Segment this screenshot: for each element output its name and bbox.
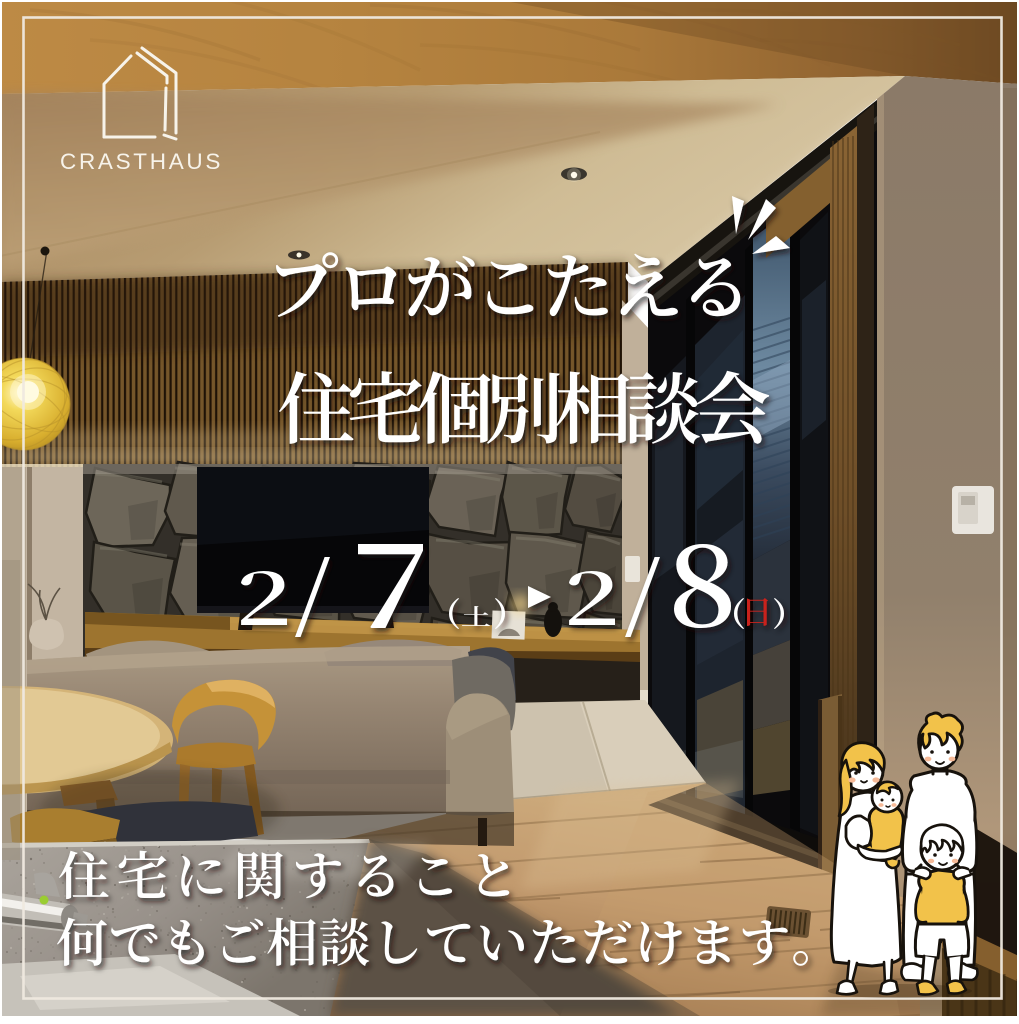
svg-text:CRASTHAUS: CRASTHAUS (60, 149, 223, 174)
